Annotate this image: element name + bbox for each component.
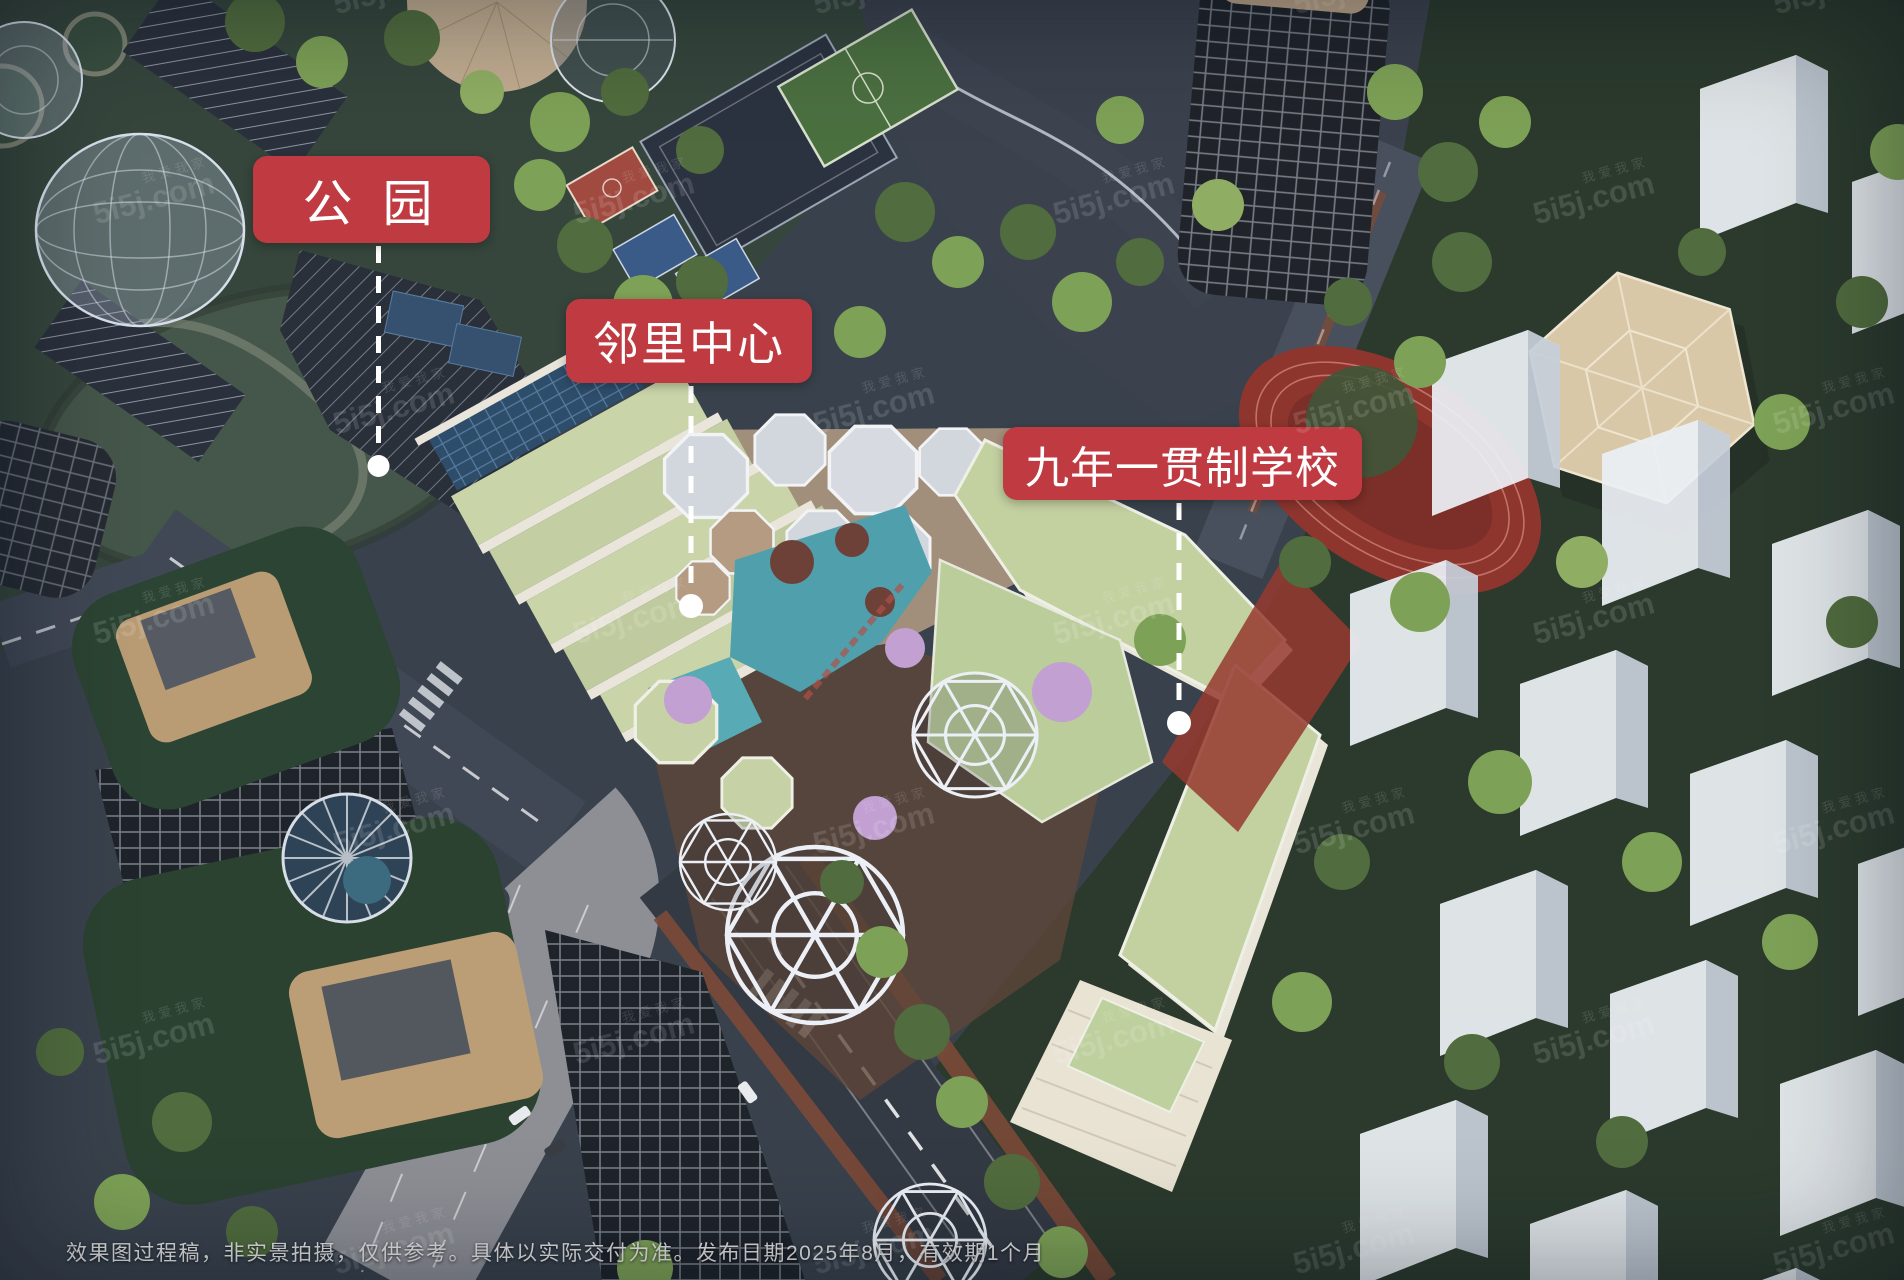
blossom-tree (853, 796, 897, 840)
radial-canopy (283, 794, 411, 922)
park-label: 公 园 (253, 156, 490, 243)
blossom-tree (1032, 662, 1092, 722)
rendered-masterplan-image: 公 园 邻里中心 九年一贯制学校 我爱我家5i5j.com我爱我家5i5j.co… (0, 0, 1904, 1280)
neighborhood-callout-dot (679, 594, 703, 618)
neighborhood-center-label: 邻里中心 (566, 299, 812, 383)
disclaimer-text: 效果图过程稿，非实景拍摄，仅供参考。具体以实际交付为准。发布日期2025年8月，… (66, 1237, 1045, 1267)
office-tower-topright (1174, 0, 1393, 308)
school-label: 九年一贯制学校 (1003, 427, 1362, 500)
blossom-tree (664, 676, 712, 724)
blossom-tree (885, 628, 925, 668)
school-callout-dot (1167, 711, 1191, 735)
park-callout-dot (368, 455, 390, 477)
